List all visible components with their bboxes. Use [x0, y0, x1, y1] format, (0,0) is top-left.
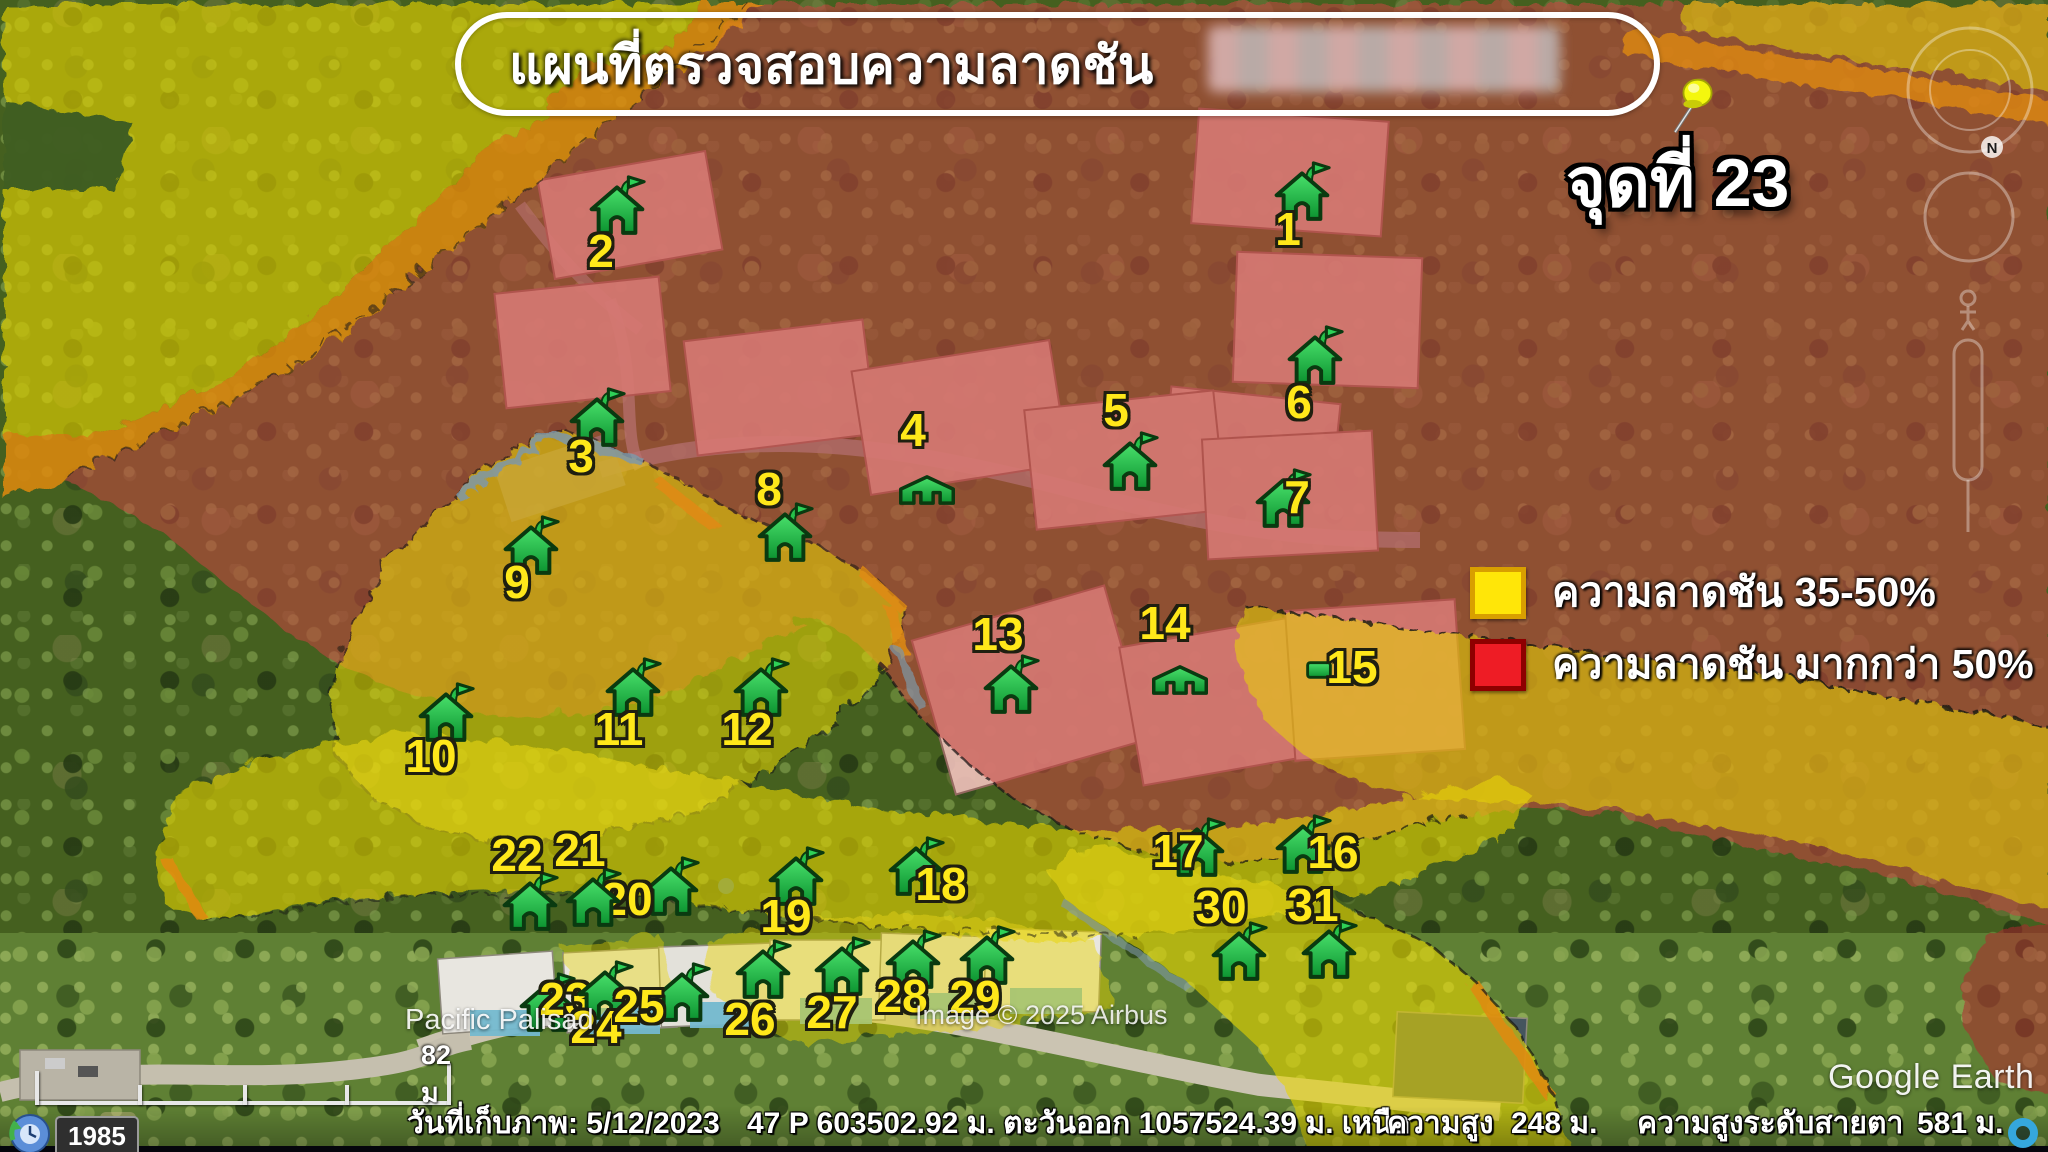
eye-altitude-icon — [2008, 1118, 2038, 1148]
marker-number: 25 — [613, 983, 664, 1029]
marker-number: 12 — [721, 706, 772, 752]
marker-number: 5 — [1103, 387, 1129, 433]
marker-number: 8 — [756, 466, 782, 512]
imagery-year-badge[interactable]: 1985 — [55, 1116, 139, 1152]
house-marker-14[interactable] — [1152, 664, 1208, 696]
zoom-slider — [1954, 340, 1982, 480]
capture-date: วันที่เก็บภาพ: 5/12/2023 — [407, 1100, 720, 1147]
legend-item-red: ความลาดชัน มากกว่า 50% — [1470, 632, 2034, 697]
marker-number: 14 — [1139, 600, 1190, 646]
marker-number: 3 — [568, 433, 594, 479]
house-marker-13[interactable] — [983, 652, 1039, 715]
legend-label: ความลาดชัน 35-50% — [1552, 560, 1936, 625]
legend-swatch-yellow — [1470, 567, 1526, 619]
marker-number: 21 — [554, 827, 605, 873]
marker-number: 16 — [1307, 829, 1358, 875]
marker-number: 22 — [491, 832, 542, 878]
page-title: แผนที่ตรวจสอบความลาดชัน — [509, 23, 1153, 106]
marker-number: 6 — [1286, 379, 1312, 425]
point-number-label: จุดที่ 23 — [1566, 128, 1789, 236]
marker-number: 30 — [1195, 884, 1246, 930]
marker-number: 7 — [1284, 474, 1310, 520]
legend-item-yellow: ความลาดชัน 35-50% — [1470, 560, 1936, 625]
marker-number: 4 — [900, 407, 926, 453]
house-marker-26[interactable] — [735, 937, 791, 1000]
place-label: Pacific Palisad — [405, 1004, 594, 1037]
marker-number: 17 — [1152, 828, 1203, 874]
historical-imagery-clock-icon[interactable] — [8, 1112, 52, 1152]
marker-number: 27 — [806, 989, 857, 1035]
marker-number: 10 — [405, 733, 456, 779]
google-earth-logo: Google Earth — [1828, 1058, 2034, 1097]
marker-number: 2 — [588, 228, 614, 274]
marker-number: 26 — [724, 996, 775, 1042]
street-view-person-icon — [1961, 291, 1975, 305]
legend-swatch-red — [1470, 639, 1526, 691]
compass-ring — [1908, 28, 2032, 152]
utm-coordinates: 47 P 603502.92 ม. ตะวันออก 1057524.39 ม.… — [747, 1100, 1410, 1147]
pan-control — [1925, 173, 2013, 261]
navigation-controls[interactable]: N — [1880, 20, 2048, 540]
compass-north-label: N — [1987, 140, 1998, 157]
marker-number: 11 — [595, 706, 644, 752]
marker-number: 15 — [1326, 644, 1377, 690]
eye-altitude-label: ความสูงระดับสายตา — [1637, 1100, 1903, 1147]
altitude-value: 248 ม. — [1511, 1100, 1598, 1147]
google-earth-map-view[interactable]: 1234567891011121314151617181920212223242… — [0, 0, 2048, 1152]
eye-altitude-value: 581 ม. — [1917, 1100, 2004, 1147]
house-marker-5[interactable] — [1102, 429, 1158, 492]
house-marker-4[interactable] — [899, 474, 955, 506]
marker-number: 9 — [504, 559, 530, 605]
marker-number: 19 — [760, 893, 811, 939]
marker-number: 18 — [915, 861, 966, 907]
legend-label: ความลาดชัน มากกว่า 50% — [1552, 632, 2034, 697]
marker-number: 1 — [1275, 206, 1301, 252]
marker-number: 13 — [972, 611, 1023, 657]
marker-number: 31 — [1287, 882, 1338, 928]
redacted-title-area — [1208, 26, 1560, 92]
altitude-label: ความสูง — [1387, 1100, 1494, 1147]
imagery-credit: Image © 2025 Airbus — [915, 1000, 1168, 1031]
